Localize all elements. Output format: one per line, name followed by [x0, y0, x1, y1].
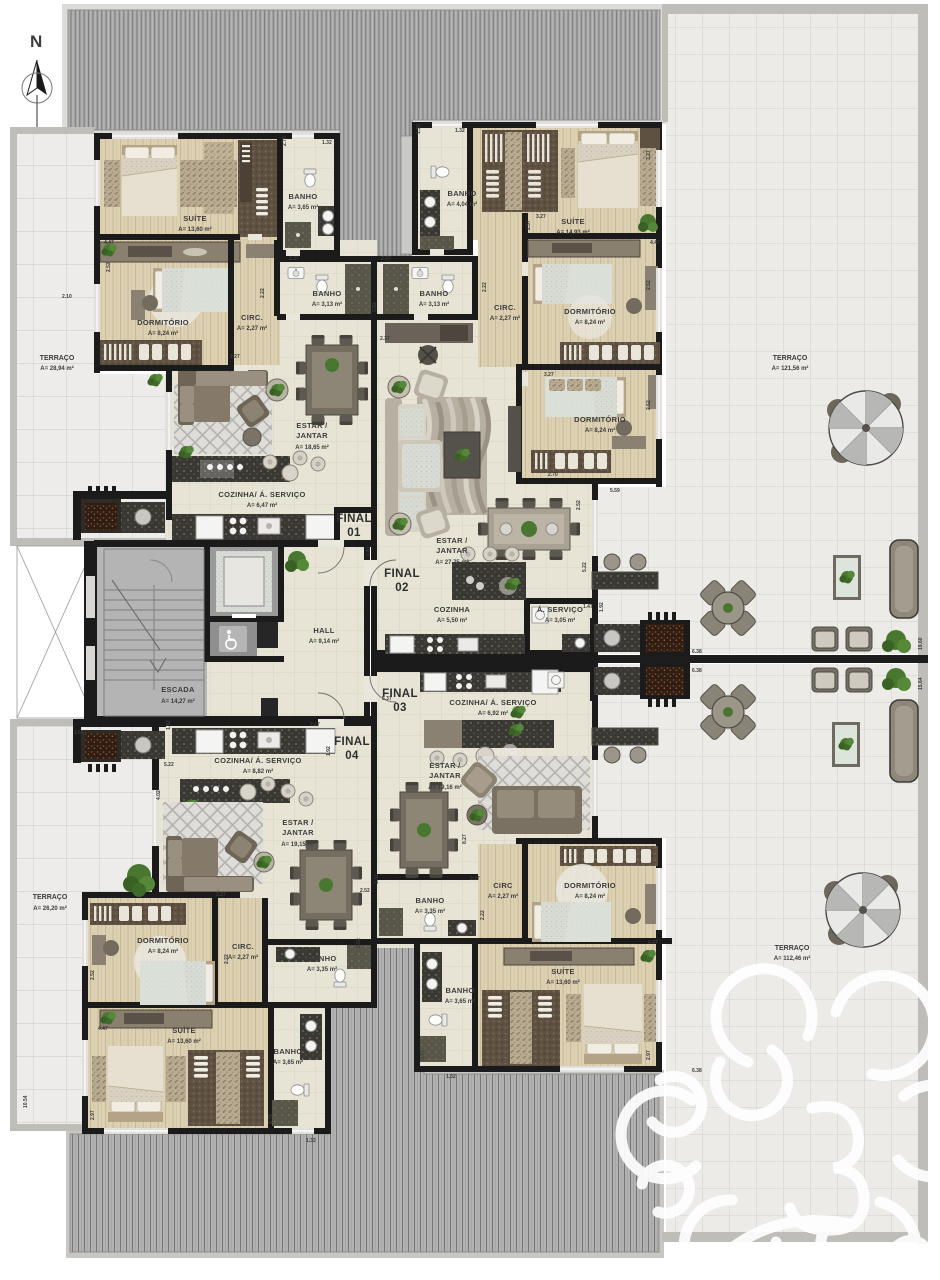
svg-text:A= 112,46 m²: A= 112,46 m² — [774, 955, 811, 962]
svg-text:BANHO: BANHO — [274, 1047, 303, 1056]
svg-text:COZINHA/ Á. SERVIÇO: COZINHA/ Á. SERVIÇO — [214, 756, 301, 765]
svg-text:A= 3,65 m²: A= 3,65 m² — [273, 1059, 303, 1066]
svg-text:BANHO: BANHO — [416, 896, 445, 905]
svg-text:1.92: 1.92 — [166, 720, 172, 730]
svg-text:2.52: 2.52 — [360, 888, 370, 894]
svg-text:2.52: 2.52 — [356, 938, 362, 948]
svg-text:2.97: 2.97 — [646, 1050, 652, 1060]
svg-text:TERRAÇO: TERRAÇO — [773, 355, 808, 362]
svg-text:Á. SERVIÇO: Á. SERVIÇO — [537, 605, 583, 614]
svg-text:DORMITÓRIO: DORMITÓRIO — [574, 415, 626, 424]
svg-text:A= 18,65 m²: A= 18,65 m² — [295, 444, 329, 451]
svg-text:4.47: 4.47 — [648, 940, 658, 946]
svg-text:2.52: 2.52 — [646, 400, 652, 410]
svg-text:ESTAR /: ESTAR / — [429, 761, 461, 770]
svg-text:BANHO: BANHO — [420, 289, 449, 298]
svg-text:N: N — [30, 32, 42, 51]
svg-text:A= 14,27 m²: A= 14,27 m² — [161, 698, 195, 705]
svg-text:03: 03 — [393, 702, 407, 714]
svg-text:JANTAR: JANTAR — [436, 546, 468, 555]
svg-text:COZINHA/ Á. SERVIÇO: COZINHA/ Á. SERVIÇO — [218, 490, 305, 499]
svg-text:1.92: 1.92 — [599, 602, 605, 612]
svg-text:A= 4,04 m²: A= 4,04 m² — [447, 201, 477, 208]
svg-text:01: 01 — [347, 527, 361, 539]
svg-text:3.27: 3.27 — [216, 892, 226, 898]
svg-text:3.27: 3.27 — [310, 722, 320, 728]
svg-text:2.22: 2.22 — [260, 288, 266, 298]
svg-text:A= 2,27 m²: A= 2,27 m² — [228, 954, 258, 961]
svg-text:A= 3,05 m²: A= 3,05 m² — [545, 617, 575, 624]
svg-text:2.52: 2.52 — [646, 280, 652, 290]
svg-text:3.27: 3.27 — [544, 372, 554, 378]
svg-text:1.32: 1.32 — [322, 140, 332, 146]
svg-text:1.32: 1.32 — [455, 128, 465, 134]
svg-text:ESCADA: ESCADA — [161, 685, 195, 694]
svg-text:3.27: 3.27 — [470, 876, 480, 882]
svg-text:A= 9,14 m²: A= 9,14 m² — [309, 638, 339, 645]
svg-text:1.47: 1.47 — [583, 604, 593, 610]
svg-text:1.32: 1.32 — [446, 1074, 456, 1080]
svg-text:A= 8,24 m²: A= 8,24 m² — [585, 427, 615, 434]
svg-text:TERRAÇO: TERRAÇO — [33, 894, 68, 901]
svg-text:A= 19,16 m²: A= 19,16 m² — [428, 784, 462, 791]
svg-text:BANHO: BANHO — [313, 289, 342, 298]
svg-text:A= 28,94 m²: A= 28,94 m² — [40, 365, 74, 372]
svg-text:4.47: 4.47 — [104, 240, 114, 246]
svg-text:FINAL: FINAL — [336, 513, 372, 525]
svg-text:ESTAR /: ESTAR / — [282, 818, 314, 827]
svg-text:2.52: 2.52 — [576, 500, 582, 510]
svg-text:HALL: HALL — [313, 626, 334, 635]
svg-text:TERRAÇO: TERRAÇO — [40, 355, 75, 362]
svg-text:2.97: 2.97 — [90, 1110, 96, 1120]
svg-text:DORMITÓRIO: DORMITÓRIO — [564, 307, 616, 316]
svg-text:A= 26,20 m²: A= 26,20 m² — [33, 905, 67, 912]
svg-text:2.10: 2.10 — [62, 294, 72, 300]
svg-text:2.22: 2.22 — [482, 282, 488, 292]
svg-text:A= 3,13 m²: A= 3,13 m² — [312, 301, 342, 308]
svg-text:5.37: 5.37 — [382, 696, 392, 702]
svg-text:FINAL: FINAL — [334, 736, 370, 748]
svg-text:4.02: 4.02 — [156, 790, 162, 800]
svg-text:A= 3,65 m²: A= 3,65 m² — [288, 204, 318, 211]
svg-text:2.52: 2.52 — [106, 262, 112, 272]
svg-text:4.47: 4.47 — [98, 1026, 108, 1032]
svg-text:A= 13,60 m²: A= 13,60 m² — [546, 979, 580, 986]
svg-text:5.92: 5.92 — [372, 302, 378, 312]
svg-text:4.47: 4.47 — [650, 240, 660, 246]
svg-text:A= 2,27 m²: A= 2,27 m² — [488, 893, 518, 900]
svg-text:1.32: 1.32 — [306, 1138, 316, 1144]
svg-text:04: 04 — [345, 750, 359, 762]
svg-text:A= 3,35 m²: A= 3,35 m² — [307, 966, 337, 973]
svg-text:6.38: 6.38 — [692, 649, 702, 655]
svg-text:ESTAR /: ESTAR / — [436, 536, 468, 545]
svg-text:JANTAR: JANTAR — [282, 828, 314, 837]
svg-text:A= 6,92 m²: A= 6,92 m² — [478, 710, 508, 717]
svg-text:A= 14,93 m²: A= 14,93 m² — [556, 229, 590, 236]
svg-text:3.27: 3.27 — [646, 150, 652, 160]
svg-text:2.75: 2.75 — [420, 1050, 426, 1060]
svg-text:A= 8,24 m²: A= 8,24 m² — [148, 948, 178, 955]
svg-text:A= 2,27 m²: A= 2,27 m² — [237, 325, 267, 332]
svg-text:2.37: 2.37 — [380, 336, 390, 342]
svg-text:TERRAÇO: TERRAÇO — [775, 945, 810, 952]
svg-text:2.57: 2.57 — [526, 220, 532, 230]
svg-text:JANTAR: JANTAR — [296, 431, 328, 440]
svg-text:CIRC.: CIRC. — [241, 313, 263, 322]
svg-text:3.27: 3.27 — [230, 354, 240, 360]
svg-text:1.92: 1.92 — [326, 746, 332, 756]
svg-text:A= 3,35 m²: A= 3,35 m² — [415, 908, 445, 915]
svg-text:CIRC.: CIRC. — [232, 942, 254, 951]
svg-text:CIRC: CIRC — [493, 881, 513, 890]
svg-text:5.22: 5.22 — [164, 762, 174, 768]
svg-text:A= 13,60 m²: A= 13,60 m² — [178, 226, 212, 233]
svg-text:A= 3,65 m²: A= 3,65 m² — [445, 998, 475, 1005]
svg-text:15,64: 15,64 — [918, 677, 924, 690]
svg-text:SUÍTE: SUÍTE — [561, 217, 585, 226]
svg-text:02: 02 — [395, 582, 409, 594]
svg-text:DORMITÓRIO: DORMITÓRIO — [564, 881, 616, 890]
svg-text:6.38: 6.38 — [692, 668, 702, 674]
svg-text:SUÍTE: SUÍTE — [551, 967, 575, 976]
svg-text:JANTAR: JANTAR — [429, 771, 461, 780]
svg-text:DORMITÓRIO: DORMITÓRIO — [137, 936, 189, 945]
svg-text:BANHO: BANHO — [308, 954, 337, 963]
svg-text:19,60: 19,60 — [918, 637, 924, 650]
svg-text:1.32: 1.32 — [416, 124, 422, 134]
svg-text:A= 8,24 m²: A= 8,24 m² — [575, 319, 605, 326]
svg-text:A= 2,27 m²: A= 2,27 m² — [490, 315, 520, 322]
svg-text:A= 27,75 m²: A= 27,75 m² — [435, 559, 469, 566]
svg-text:ESTAR /: ESTAR / — [296, 421, 328, 430]
svg-text:1.32: 1.32 — [374, 874, 380, 884]
svg-text:6.38: 6.38 — [692, 1068, 702, 1074]
svg-text:A= 6,47 m²: A= 6,47 m² — [247, 502, 277, 509]
svg-text:BANHO: BANHO — [289, 192, 318, 201]
svg-text:A= 8,24 m²: A= 8,24 m² — [575, 893, 605, 900]
svg-text:2.70: 2.70 — [548, 472, 558, 478]
svg-text:2.37: 2.37 — [381, 256, 391, 262]
svg-text:A= 5,50 m²: A= 5,50 m² — [437, 617, 467, 624]
svg-text:BANHO: BANHO — [446, 986, 475, 995]
svg-text:DORMITÓRIO: DORMITÓRIO — [137, 318, 189, 327]
svg-text:COZINHA: COZINHA — [434, 605, 471, 614]
svg-text:5.22: 5.22 — [582, 562, 588, 572]
svg-text:10.54: 10.54 — [23, 1095, 29, 1108]
svg-text:1.62: 1.62 — [74, 730, 84, 736]
svg-text:5.59: 5.59 — [610, 488, 620, 494]
svg-text:2.22: 2.22 — [224, 954, 230, 964]
svg-text:2.37: 2.37 — [289, 256, 299, 262]
svg-text:SUÍTE: SUÍTE — [183, 214, 207, 223]
svg-text:BANHO: BANHO — [448, 189, 477, 198]
svg-text:A= 19,15 m²: A= 19,15 m² — [281, 841, 315, 848]
svg-text:8.27: 8.27 — [462, 834, 468, 844]
svg-text:A= 13,60 m²: A= 13,60 m² — [167, 1038, 201, 1045]
svg-text:COZINHA/ Á. SERVIÇO: COZINHA/ Á. SERVIÇO — [449, 698, 536, 707]
svg-text:2.52: 2.52 — [90, 970, 96, 980]
svg-text:6.87: 6.87 — [366, 546, 372, 556]
svg-text:2.75: 2.75 — [268, 1114, 274, 1124]
svg-text:3.27: 3.27 — [536, 214, 546, 220]
svg-text:2.22: 2.22 — [480, 910, 486, 920]
svg-text:FINAL: FINAL — [384, 568, 420, 580]
svg-text:CIRC.: CIRC. — [494, 303, 516, 312]
svg-text:A= 121,56 m²: A= 121,56 m² — [772, 365, 809, 372]
svg-text:2.75: 2.75 — [282, 136, 288, 146]
svg-text:A= 3,13 m²: A= 3,13 m² — [419, 301, 449, 308]
svg-text:SUÍTE: SUÍTE — [172, 1026, 196, 1035]
svg-text:A= 8,82 m²: A= 8,82 m² — [243, 768, 273, 775]
svg-text:A= 8,24 m²: A= 8,24 m² — [148, 330, 178, 337]
